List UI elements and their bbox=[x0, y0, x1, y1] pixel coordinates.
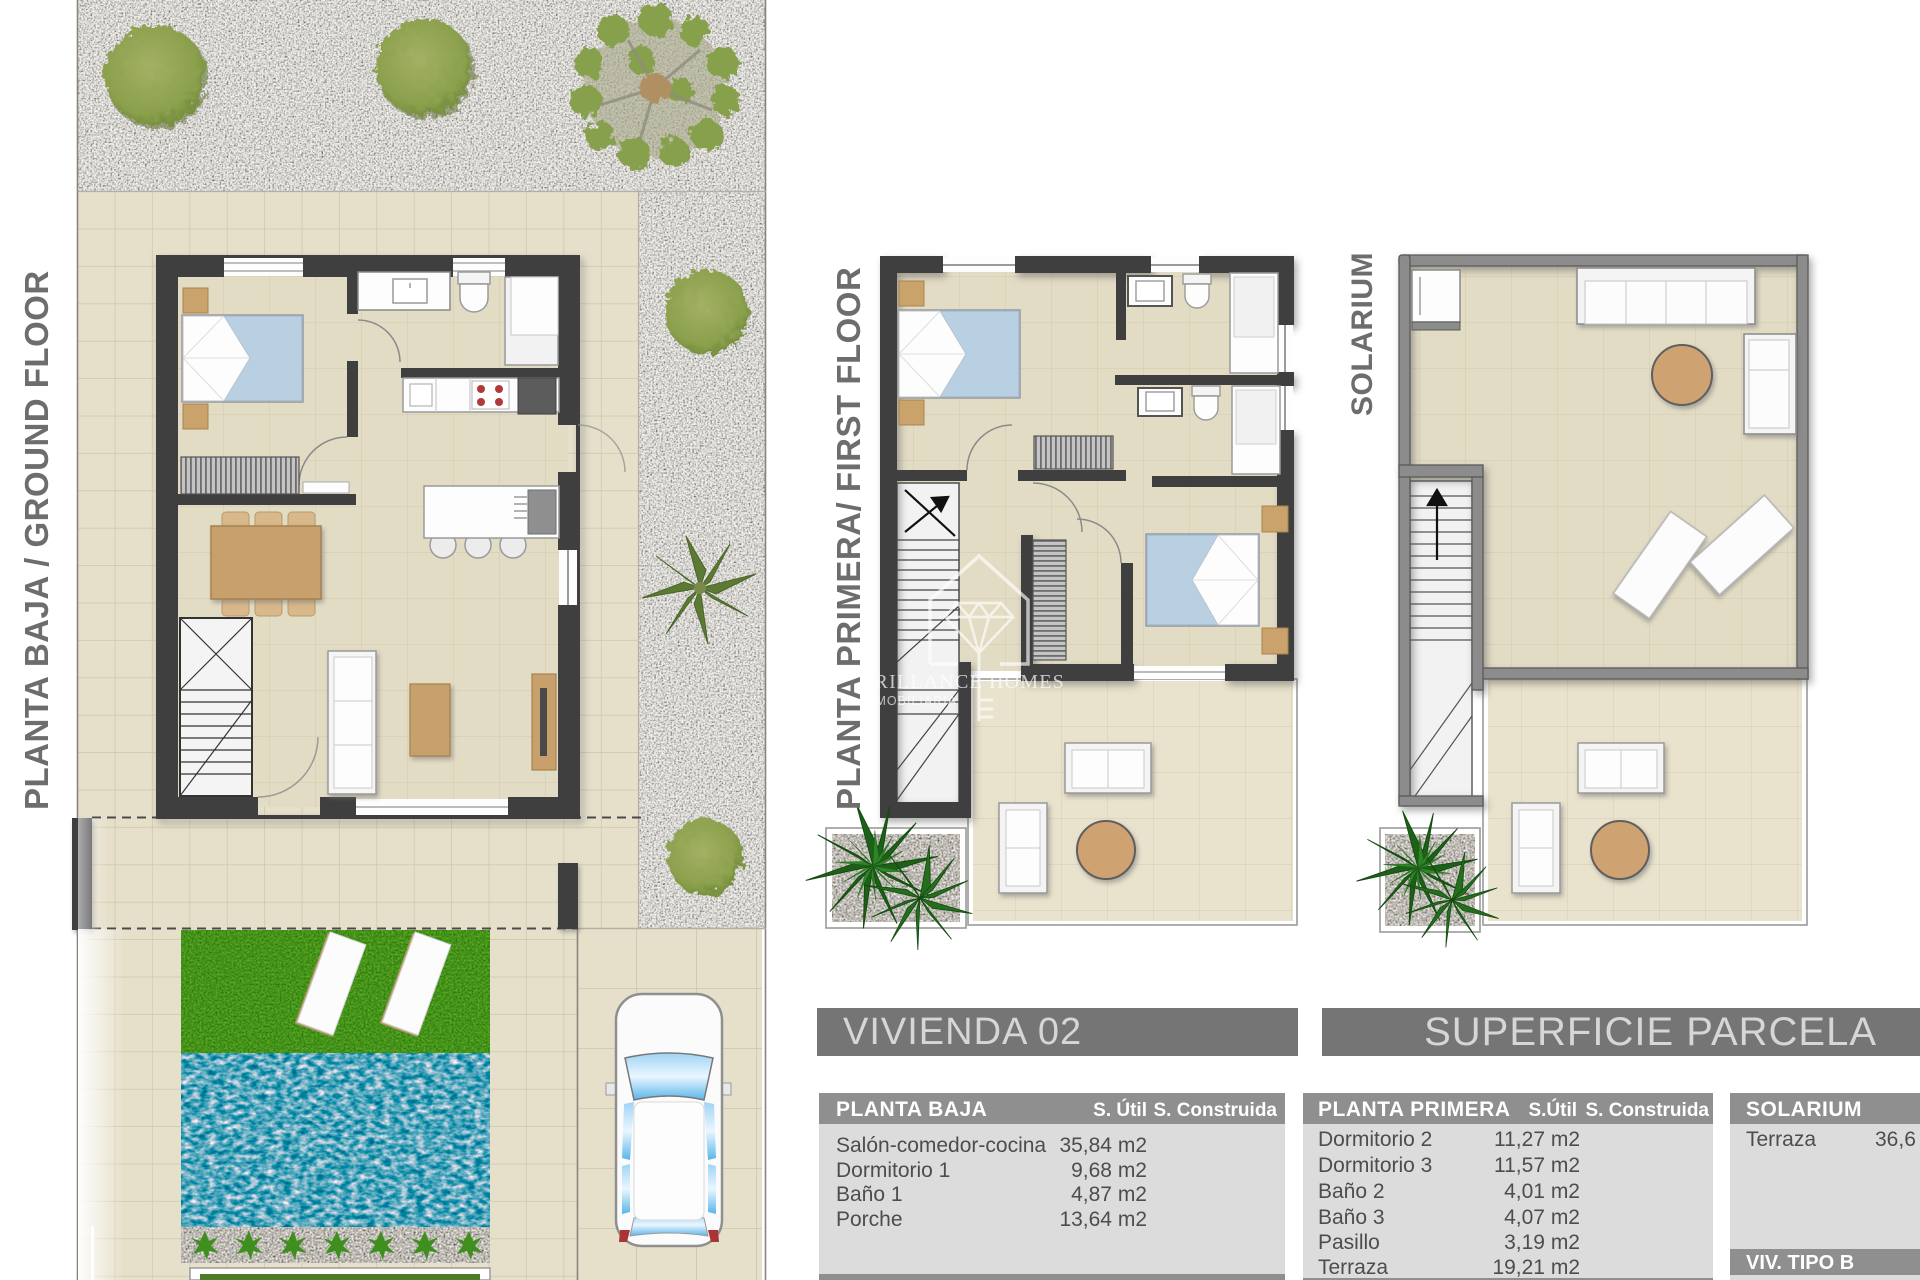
svg-text:SOLARIUM: SOLARIUM bbox=[1346, 252, 1379, 416]
svg-text:BRILLANCE: BRILLANCE bbox=[860, 671, 983, 693]
svg-text:HOMES: HOMES bbox=[989, 671, 1065, 693]
svg-text:PLANTA BAJA: PLANTA BAJA bbox=[836, 1098, 987, 1121]
svg-text:4,07 m2: 4,07 m2 bbox=[1504, 1206, 1580, 1229]
svg-text:PLANTA PRIMERA/ FIRST FLOOR: PLANTA PRIMERA/ FIRST FLOOR bbox=[830, 267, 867, 810]
svg-text:Dormitorio 2: Dormitorio 2 bbox=[1318, 1128, 1432, 1151]
svg-text:Dormitorio 1: Dormitorio 1 bbox=[836, 1159, 950, 1182]
svg-text:4,01 m2: 4,01 m2 bbox=[1504, 1180, 1580, 1203]
svg-text:4,87 m2: 4,87 m2 bbox=[1071, 1183, 1147, 1206]
svg-text:11,57 m2: 11,57 m2 bbox=[1494, 1154, 1580, 1177]
svg-text:S. Útil: S. Útil bbox=[1093, 1099, 1147, 1121]
svg-text:3,19 m2: 3,19 m2 bbox=[1504, 1231, 1580, 1254]
svg-text:Pasillo: Pasillo bbox=[1318, 1231, 1380, 1254]
svg-text:Terraza: Terraza bbox=[1746, 1128, 1816, 1151]
svg-text:36,6: 36,6 bbox=[1875, 1128, 1916, 1151]
svg-text:PLANTA PRIMERA: PLANTA PRIMERA bbox=[1318, 1098, 1511, 1121]
svg-text:19,21 m2: 19,21 m2 bbox=[1492, 1256, 1580, 1279]
svg-text:SOLARIUM: SOLARIUM bbox=[1746, 1098, 1862, 1121]
svg-text:S. Construida: S. Construida bbox=[1585, 1100, 1709, 1121]
svg-text:S.Útil: S.Útil bbox=[1528, 1099, 1577, 1121]
svg-text:Porche: Porche bbox=[836, 1208, 903, 1231]
svg-text:Dormitorio 3: Dormitorio 3 bbox=[1318, 1154, 1432, 1177]
svg-text:SUPERFICIE PARCELA: SUPERFICIE PARCELA bbox=[1424, 1010, 1877, 1054]
svg-text:Baño 2: Baño 2 bbox=[1318, 1180, 1385, 1203]
svg-text:S. Construida: S. Construida bbox=[1153, 1100, 1277, 1121]
svg-text:11,27 m2: 11,27 m2 bbox=[1494, 1128, 1580, 1151]
svg-text:Baño 1: Baño 1 bbox=[836, 1183, 903, 1206]
svg-text:Baño 3: Baño 3 bbox=[1318, 1206, 1385, 1229]
svg-text:INMOBILIARIA: INMOBILIARIA bbox=[861, 694, 957, 708]
svg-text:PLANTA BAJA / GROUND FLOOR: PLANTA BAJA / GROUND FLOOR bbox=[18, 270, 55, 810]
svg-text:VIV. TIPO B: VIV. TIPO B bbox=[1746, 1252, 1854, 1274]
svg-text:VIVIENDA 02: VIVIENDA 02 bbox=[843, 1011, 1082, 1053]
svg-text:13,64 m2: 13,64 m2 bbox=[1059, 1208, 1147, 1231]
svg-text:9,68 m2: 9,68 m2 bbox=[1071, 1159, 1147, 1182]
svg-text:Salón-comedor-cocina: Salón-comedor-cocina bbox=[836, 1134, 1046, 1157]
svg-text:Terraza: Terraza bbox=[1318, 1256, 1388, 1279]
svg-text:35,84 m2: 35,84 m2 bbox=[1059, 1134, 1147, 1157]
